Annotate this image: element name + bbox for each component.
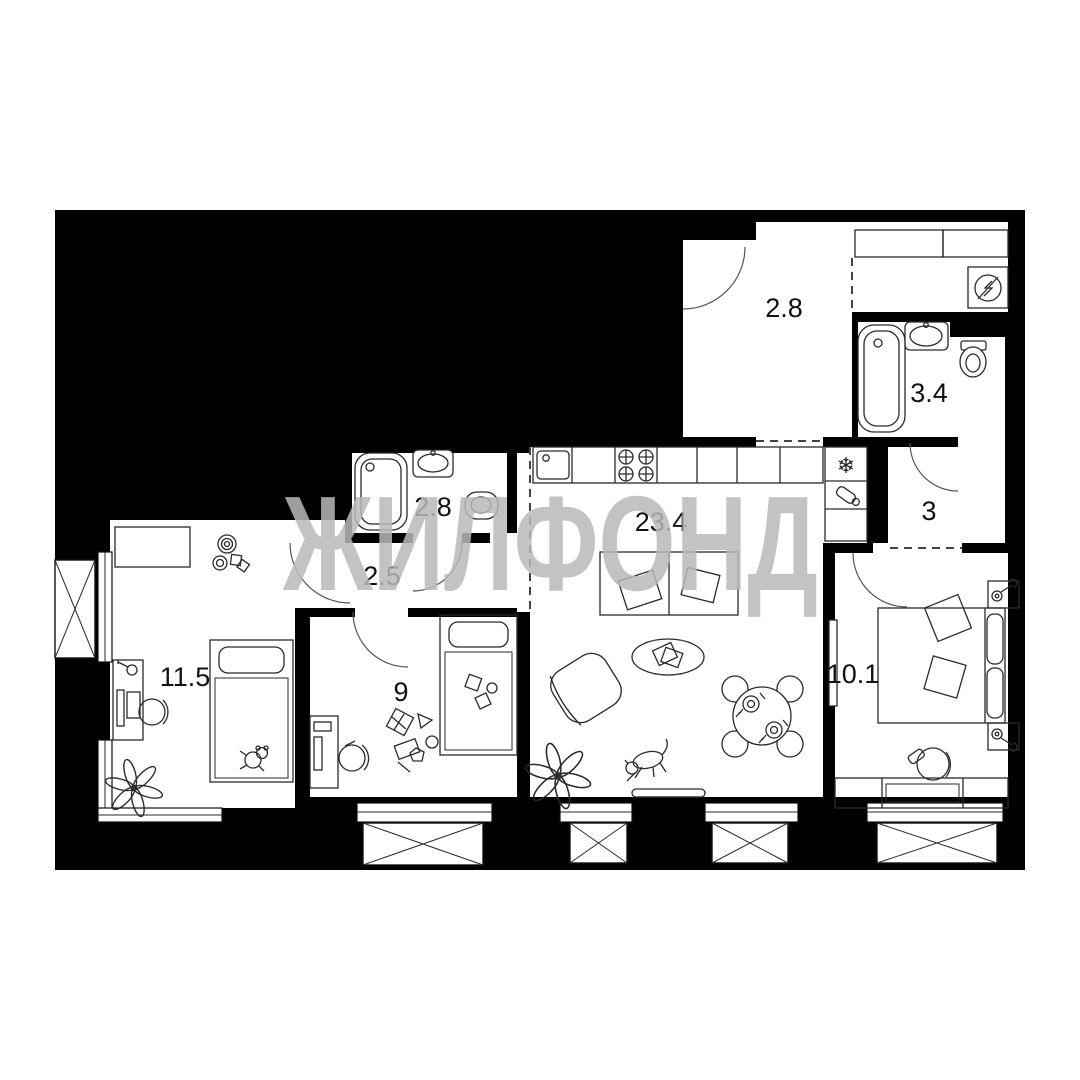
wall-niche xyxy=(950,315,1005,337)
fridge-icon: ❄ xyxy=(837,453,855,478)
label-corridor: 3 xyxy=(921,496,936,526)
balcony-room9-icon xyxy=(363,823,483,865)
label-bedroom-right: 10.1 xyxy=(827,659,880,689)
toilet-icon xyxy=(960,341,986,377)
balcony-living-2-icon xyxy=(712,823,788,863)
bathtub-icon xyxy=(858,325,905,432)
floorplan-page: ❄ xyxy=(0,0,1080,1080)
window-room9-icon xyxy=(357,803,492,822)
label-bathroom-main: 3.4 xyxy=(910,378,948,408)
window-bedroom-icon xyxy=(867,803,1003,822)
ac-basket-icon xyxy=(55,560,95,658)
label-bedroom-middle: 9 xyxy=(393,677,408,707)
label-entry-hall: 2.8 xyxy=(765,293,803,323)
window-living-1-icon xyxy=(560,803,632,822)
floorplan-canvas: ❄ xyxy=(0,0,1080,1080)
balcony-bedroom-icon xyxy=(877,823,997,863)
window-left-icon xyxy=(98,552,112,662)
window-living-2-icon xyxy=(705,803,798,822)
watermark-text: ЖИЛФОНД xyxy=(282,468,818,619)
sink-icon xyxy=(905,322,948,350)
balcony-living-1-icon xyxy=(570,823,627,863)
label-bedroom-left: 11.5 xyxy=(160,662,211,692)
